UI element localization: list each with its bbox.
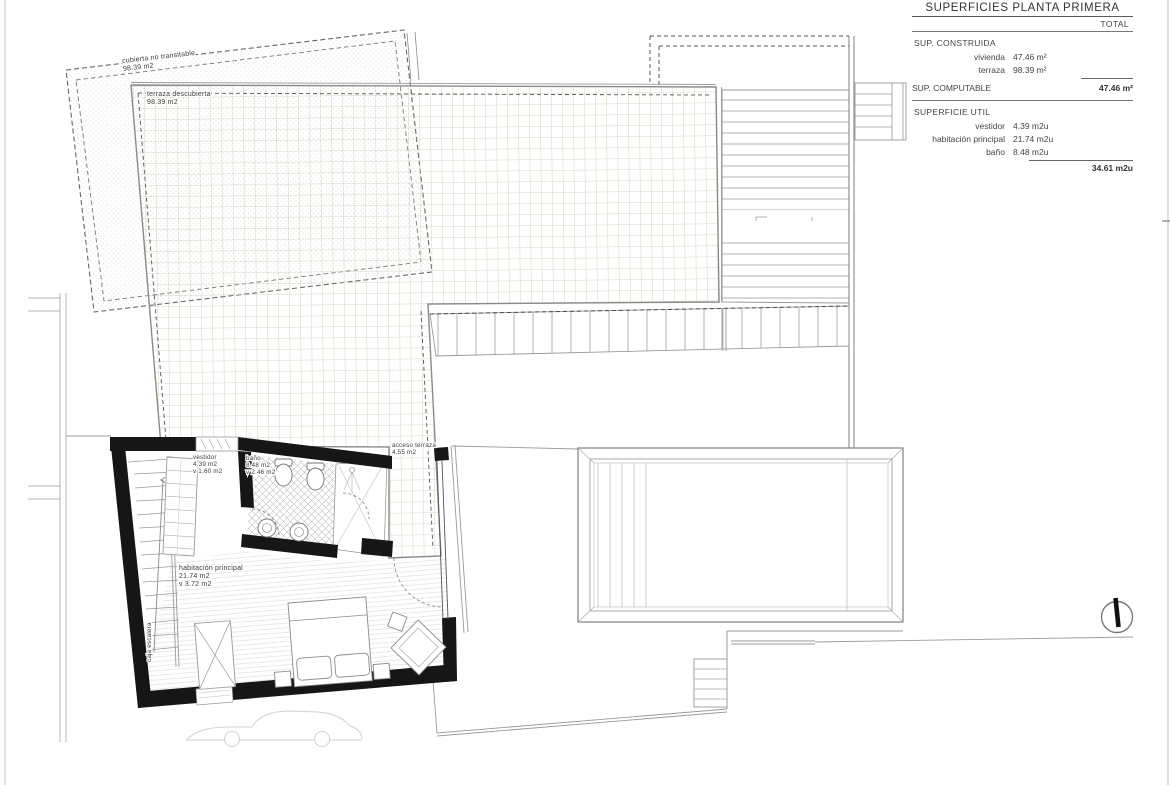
svg-text:v 2.46 m2: v 2.46 m2 — [246, 469, 276, 476]
row-value: 47.46 m² — [1013, 51, 1075, 64]
louvre-strip — [430, 306, 849, 356]
row-label: habitación principal — [912, 133, 1005, 146]
row-value: 98.39 m² — [1013, 64, 1075, 77]
bidet — [307, 468, 324, 490]
area-summary-table: SUPERFICIES PLANTA PRIMERA TOTAL SUP. CO… — [912, 1, 1133, 175]
north-arrow-icon — [1102, 598, 1133, 633]
useful-total: 34.61 m2u — [912, 161, 1133, 175]
svg-text:acceso terraza: acceso terraza — [392, 442, 436, 449]
svg-text:98.39 m2: 98.39 m2 — [147, 99, 178, 106]
pool — [578, 448, 903, 622]
row-value: 8.48 m2u — [1013, 146, 1075, 159]
subtotal-rule — [1081, 78, 1133, 79]
nightstand-left — [274, 671, 291, 687]
toilet — [275, 464, 292, 486]
row-value: 4.39 m2u — [1013, 120, 1075, 133]
row-total — [1083, 51, 1133, 64]
svg-text:caja escalera: caja escalera — [146, 622, 153, 662]
wardrobe — [194, 621, 235, 690]
wall-closet — [196, 437, 238, 451]
section-constructed: SUP. CONSTRUIDA — [912, 32, 1133, 51]
svg-text:terraza descubierta: terraza descubierta — [147, 91, 211, 98]
nightstand-right — [373, 663, 390, 679]
car-silhouette — [186, 711, 362, 747]
row-label: vivienda — [912, 51, 1005, 64]
svg-text:4.39 m2: 4.39 m2 — [193, 461, 217, 468]
svg-text:v 3.72 m2: v 3.72 m2 — [179, 581, 212, 588]
row-total — [1083, 64, 1133, 77]
svg-text:baño: baño — [246, 455, 261, 462]
svg-text:vestidor: vestidor — [193, 454, 217, 461]
row-label: terraza — [912, 64, 1005, 77]
row-label: vestidor — [912, 120, 1005, 133]
floorplan-sheet: cubierta no transitable 98.39 m2 terraza… — [0, 0, 1170, 785]
row-total: 47.46 m² — [1075, 81, 1133, 95]
table-title: SUPERFICIES PLANTA PRIMERA — [912, 1, 1133, 16]
svg-text:8.48 m2: 8.48 m2 — [246, 462, 270, 469]
row-computable: SUP. COMPUTABLE 47.46 m² — [912, 81, 1133, 95]
row-label: baño — [912, 146, 1005, 159]
svg-text:v 1.60 m2: v 1.60 m2 — [193, 468, 223, 475]
row-bano: baño 8.48 m2u — [912, 146, 1133, 159]
row-total — [1083, 120, 1133, 133]
svg-text:4.55 m2: 4.55 m2 — [392, 449, 416, 456]
pillow-left — [296, 656, 332, 681]
label-vestidor: vestidor 4.39 m2 v 1.60 m2 — [193, 454, 223, 475]
pillow-right — [334, 653, 370, 678]
row-habitacion: habitación principal 21.74 m2u — [912, 133, 1133, 146]
row-vivienda: vivienda 47.46 m² — [912, 51, 1133, 64]
section-useful: SUPERFICIE UTIL — [912, 101, 1133, 120]
label-escalera: caja escalera — [146, 622, 153, 662]
svg-text:habitación principal: habitación principal — [179, 565, 243, 572]
row-total — [1083, 146, 1133, 159]
row-value: 21.74 m2u — [1013, 133, 1075, 146]
row-label: SUP. COMPUTABLE — [912, 81, 1075, 95]
total-column-header: TOTAL — [912, 17, 1133, 31]
row-terraza: terraza 98.39 m² — [912, 64, 1133, 77]
row-total — [1083, 133, 1133, 146]
row-vestidor: vestidor 4.39 m2u — [912, 120, 1133, 133]
svg-text:21.74 m2: 21.74 m2 — [179, 573, 210, 580]
